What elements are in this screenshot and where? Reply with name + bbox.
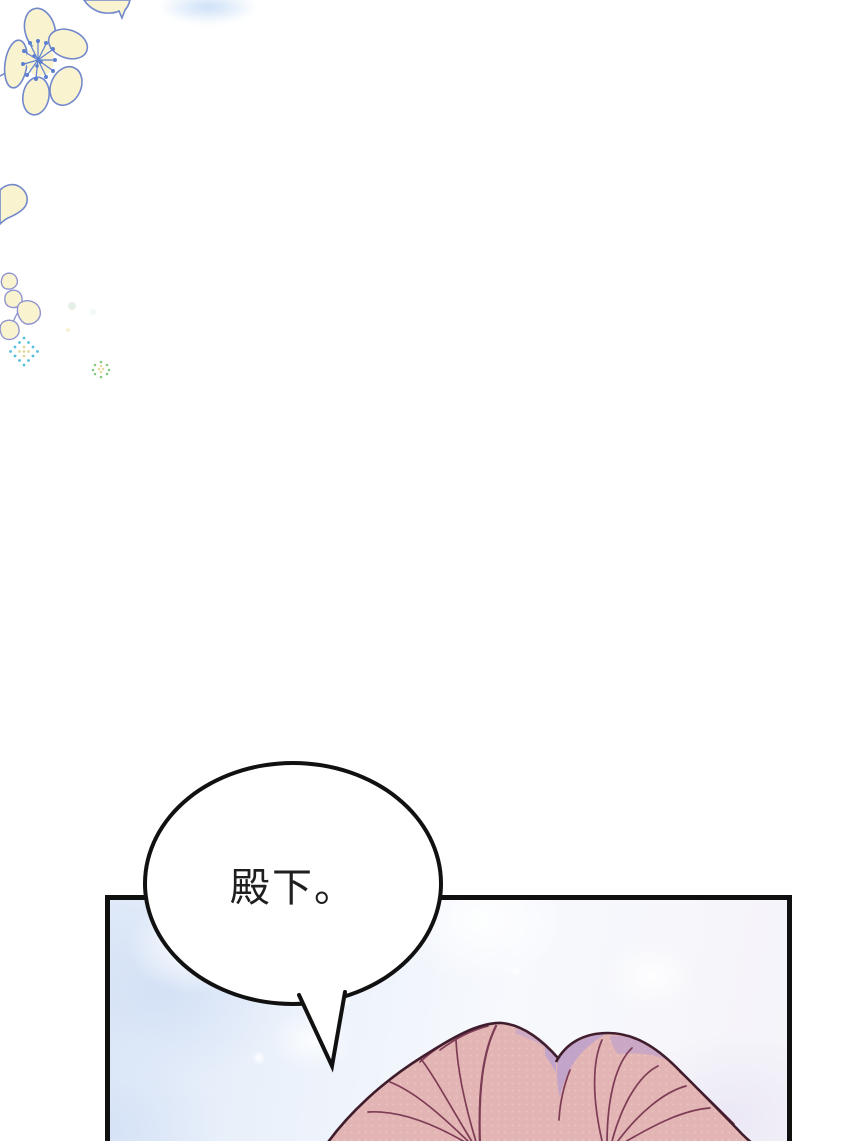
hair-left-mound <box>326 1023 583 1141</box>
leaf-blob <box>0 185 27 224</box>
speech-bubble-text: 殿下。 <box>230 855 356 913</box>
bokeh-dot <box>90 309 96 315</box>
halftone-dot-circle <box>92 361 111 379</box>
bokeh-dot <box>68 302 76 310</box>
partial-flower-top <box>84 0 130 18</box>
buttercup-flower <box>0 5 92 117</box>
page-canvas: 殿下。 <box>0 0 850 1141</box>
small-flower-cluster <box>0 273 40 339</box>
hair-right-mound <box>556 1033 754 1141</box>
floral-decoration <box>0 0 260 400</box>
halftone-diamond <box>9 337 39 367</box>
speech-bubble: 殿下。 <box>143 761 443 1006</box>
bokeh-dot <box>66 328 70 332</box>
character-hair <box>320 1010 790 1141</box>
